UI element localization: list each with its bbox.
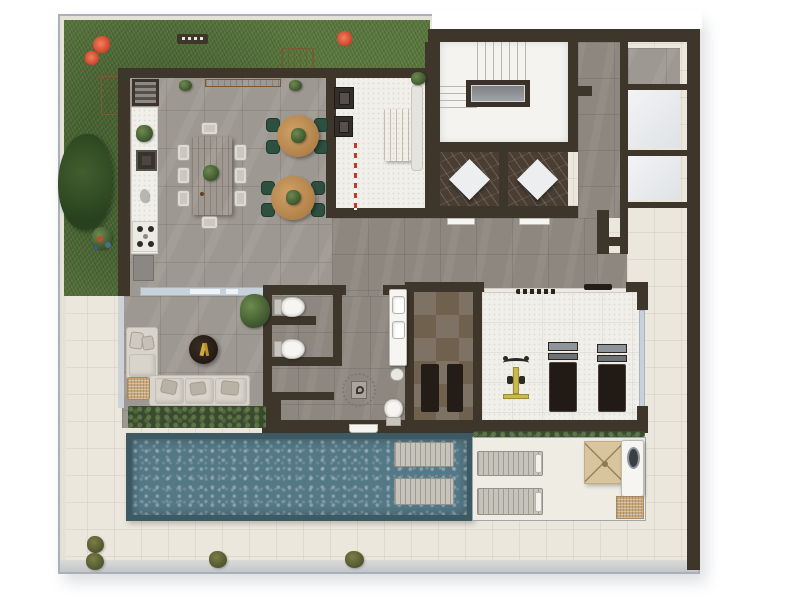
gym-right-glass <box>639 310 645 408</box>
wall-stall-divider-1 <box>263 316 316 325</box>
dining-chair <box>234 144 247 161</box>
wall-console <box>205 79 281 87</box>
pool-planter <box>128 406 266 428</box>
vanity-counter <box>389 289 407 366</box>
sauna-bench <box>447 364 463 412</box>
wall-shower-h <box>272 392 334 400</box>
gym-wall-bar <box>584 284 612 290</box>
dining-chair <box>177 190 190 207</box>
wall-stair-marble-divider <box>428 142 578 152</box>
wall-closet-divider <box>620 202 687 208</box>
elevator-lobby-floor <box>578 42 620 218</box>
wall-corridor-east-stub <box>609 237 627 246</box>
flower-red <box>93 36 110 53</box>
bistro-table <box>277 115 319 157</box>
wall-gym-left <box>473 290 482 428</box>
sauna-bench <box>421 364 439 412</box>
bistro-table <box>271 176 315 220</box>
under-counter-cabinet <box>133 255 154 281</box>
kitchen-bench <box>411 85 423 171</box>
glass-mullion <box>226 289 238 294</box>
walkway-bush <box>209 551 227 568</box>
wall-corridor-east <box>597 210 609 254</box>
exercise-bike <box>503 356 529 402</box>
counter-plant <box>136 125 153 142</box>
floor-plan <box>0 0 786 600</box>
dining-chair <box>201 216 218 229</box>
wall-marble-bottom <box>428 206 578 218</box>
toilet-vertical <box>384 399 403 426</box>
gym-coat-hooks <box>516 289 556 294</box>
dining-chair <box>234 167 247 184</box>
deck-mat <box>616 496 644 519</box>
flower-red <box>85 51 99 65</box>
dining-chair <box>177 167 190 184</box>
walkway-bush <box>87 536 104 553</box>
lounge-west-glazing <box>118 296 124 408</box>
wall-right <box>687 29 700 570</box>
dining-chair <box>201 122 218 135</box>
cabin-doormat <box>519 218 550 225</box>
pool-edge-step <box>349 424 378 433</box>
wall-top-right <box>428 29 700 42</box>
wall-gym-right-post <box>637 282 648 310</box>
patio-umbrella <box>584 441 624 484</box>
wall-left <box>118 68 130 296</box>
in-pool-lounger <box>394 442 454 467</box>
cabin-doormat <box>447 218 475 225</box>
wall-stall-right <box>333 294 342 366</box>
kitchen-tall-cabinet <box>132 79 159 106</box>
lounge-side-table <box>127 377 150 400</box>
toilet <box>274 339 305 359</box>
cooktop-stove <box>132 221 158 252</box>
treadmill <box>597 344 627 412</box>
treadmill <box>548 342 578 412</box>
stairwell-opening <box>466 80 530 107</box>
lounge-coffee-table <box>189 335 218 364</box>
dining-chair <box>177 144 190 161</box>
dining-table-knot <box>200 192 204 196</box>
kitchen-island-table <box>384 109 411 161</box>
wall-kitchen-bottom <box>326 208 430 218</box>
walkway-bush <box>86 553 104 570</box>
dining-chair <box>234 190 247 207</box>
counter-sink <box>136 150 157 171</box>
door-swing-dashes <box>354 143 357 210</box>
wall-stair-right <box>568 42 578 152</box>
lounge-sofa <box>149 375 250 406</box>
shower-drain-marker <box>342 373 376 407</box>
built-in-grill <box>334 87 354 109</box>
page-mask <box>432 10 702 29</box>
wall-closet-divider <box>620 84 687 90</box>
stair-treads-upper <box>477 42 533 83</box>
toilet <box>274 297 305 317</box>
deck-wash-basin <box>621 440 644 497</box>
garden-flower-dot <box>97 236 103 242</box>
counter-faucet <box>140 189 149 202</box>
walkway-bush <box>345 551 364 568</box>
water-fountain <box>390 368 404 381</box>
wall-closet-left <box>620 42 628 254</box>
deck-lounger <box>477 451 543 476</box>
garden-grill <box>177 34 208 44</box>
wall-gym-top-corner <box>438 282 484 292</box>
shaft-upper <box>628 90 680 148</box>
wall-stair-stub <box>578 86 592 96</box>
garden-tree <box>58 134 112 230</box>
glass-mullion <box>190 289 220 294</box>
wall-top-main <box>118 68 432 78</box>
shaft-lower <box>628 156 680 200</box>
in-pool-lounger <box>394 478 454 505</box>
wall-marble-divider <box>499 152 508 207</box>
flower-red <box>337 31 352 46</box>
closet-top <box>628 48 680 84</box>
built-in-grill <box>334 116 353 137</box>
garden-flower-dot <box>93 246 98 251</box>
lounge-chaise <box>126 327 158 379</box>
wall-stair-left-column <box>425 42 440 218</box>
wall-closet-divider <box>620 150 687 156</box>
parapet-bottom-band <box>60 560 698 572</box>
garden-flower-dot <box>105 242 111 248</box>
deck-lounger <box>477 488 543 515</box>
